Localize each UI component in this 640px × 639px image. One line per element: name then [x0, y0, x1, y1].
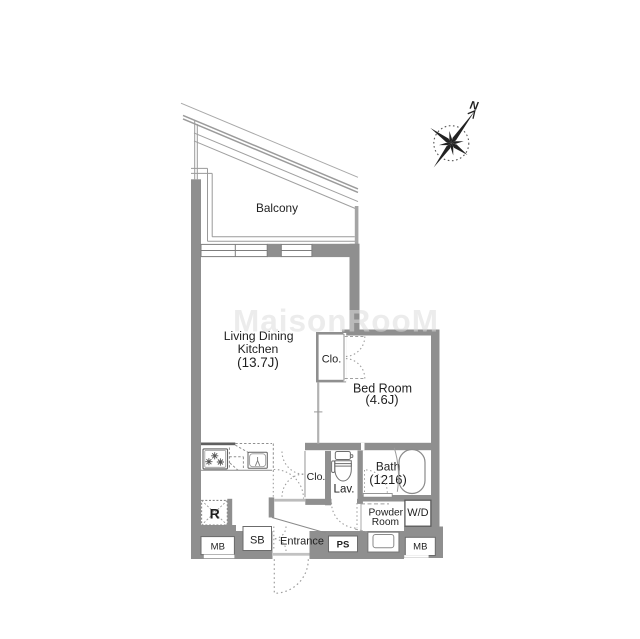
svg-text:N: N — [469, 100, 480, 113]
svg-text:Clo.: Clo. — [307, 471, 326, 483]
svg-text:Entrance: Entrance — [280, 536, 324, 548]
svg-text:PS: PS — [337, 540, 350, 551]
svg-text:W/D: W/D — [407, 507, 428, 519]
svg-text:Room: Room — [372, 517, 399, 528]
svg-text:Balcony: Balcony — [256, 201, 298, 215]
svg-text:Kitchen: Kitchen — [238, 342, 279, 356]
svg-text:Lav.: Lav. — [334, 484, 355, 496]
svg-text:(4.6J): (4.6J) — [365, 392, 398, 407]
svg-text:MaisonRooM: MaisonRooM — [233, 303, 439, 339]
svg-text:MB: MB — [413, 542, 427, 553]
svg-text:SB: SB — [250, 535, 265, 547]
svg-text:(1216): (1216) — [369, 472, 407, 487]
svg-text:(13.7J): (13.7J) — [237, 355, 279, 370]
svg-text:R: R — [210, 506, 220, 522]
svg-text:Clo.: Clo. — [322, 354, 342, 366]
svg-text:MB: MB — [211, 542, 225, 553]
